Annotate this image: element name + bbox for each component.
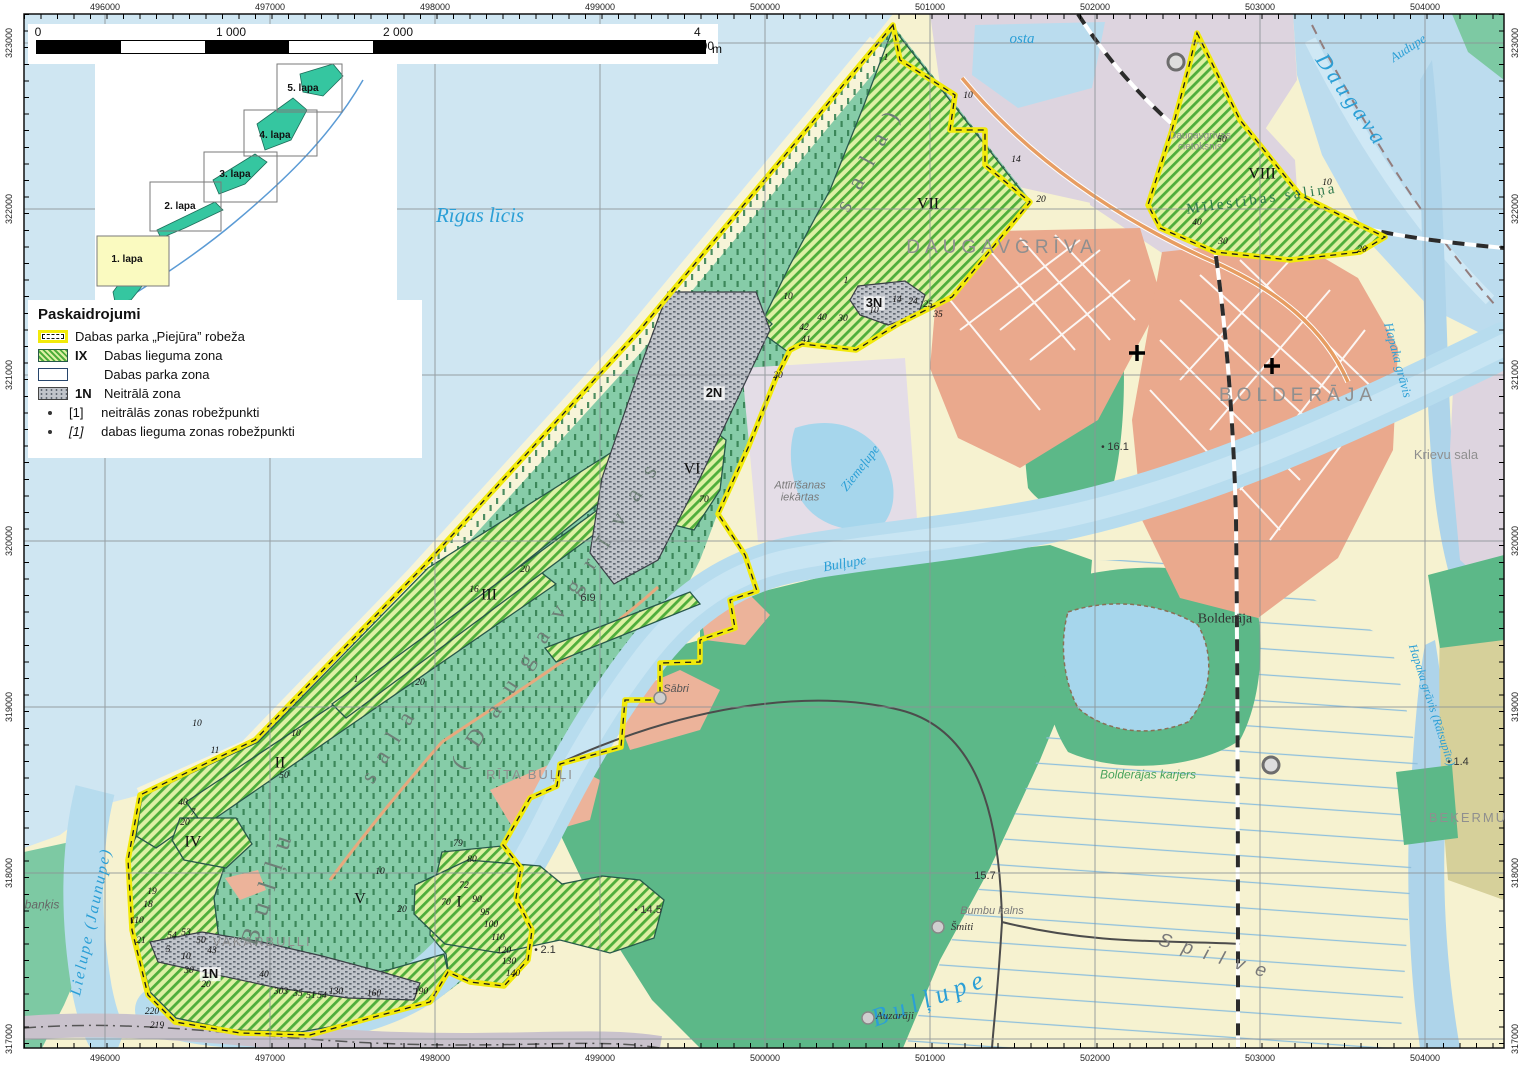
legend-pt1-label: neitrālās zonas robežpunkti	[101, 405, 259, 420]
legend-point-symbol	[48, 411, 52, 415]
legend-pt2-code: [1]	[69, 424, 83, 439]
legend-lieguma-swatch	[38, 349, 68, 362]
legend-neutral-label: Neitrālā zona	[104, 386, 181, 401]
lake-bolderajas-karjers	[1063, 604, 1208, 731]
legend-title: Paskaidrojumi	[38, 306, 412, 323]
scale-bar-segments	[36, 40, 706, 54]
inset-graphic	[95, 62, 397, 300]
map-sheet: 0 1 000 2 000 4 000 m 1. lapa 2. lapa	[0, 0, 1524, 1070]
legend-lieguma-code: IX	[75, 348, 97, 363]
scale-unit: m	[712, 42, 722, 56]
scale-tick-2000: 2 000	[383, 25, 413, 39]
legend-neutral-code: 1N	[75, 386, 97, 401]
legend: Paskaidrojumi Dabas parka „Piejūra” robe…	[28, 300, 422, 458]
legend-point-symbol-2	[48, 430, 52, 434]
legend-lieguma-label: Dabas lieguma zona	[104, 348, 223, 363]
legend-neutral-swatch	[38, 387, 68, 400]
scale-tick-0: 0	[35, 25, 42, 39]
legend-boundary-swatch	[38, 330, 68, 343]
inset-overview-map: 1. lapa 2. lapa 3. lapa 4. lapa 5. lapa	[95, 62, 397, 300]
scale-bar: 0 1 000 2 000 4 000 m	[28, 24, 718, 64]
legend-boundary-label: Dabas parka „Piejūra” robeža	[75, 329, 245, 344]
legend-parka-label: Dabas parka zona	[104, 367, 210, 382]
legend-parka-swatch	[38, 368, 68, 381]
scale-tick-1000: 1 000	[216, 25, 246, 39]
legend-pt1-code: [1]	[69, 405, 83, 420]
legend-pt2-label: dabas lieguma zonas robežpunkti	[101, 424, 295, 439]
